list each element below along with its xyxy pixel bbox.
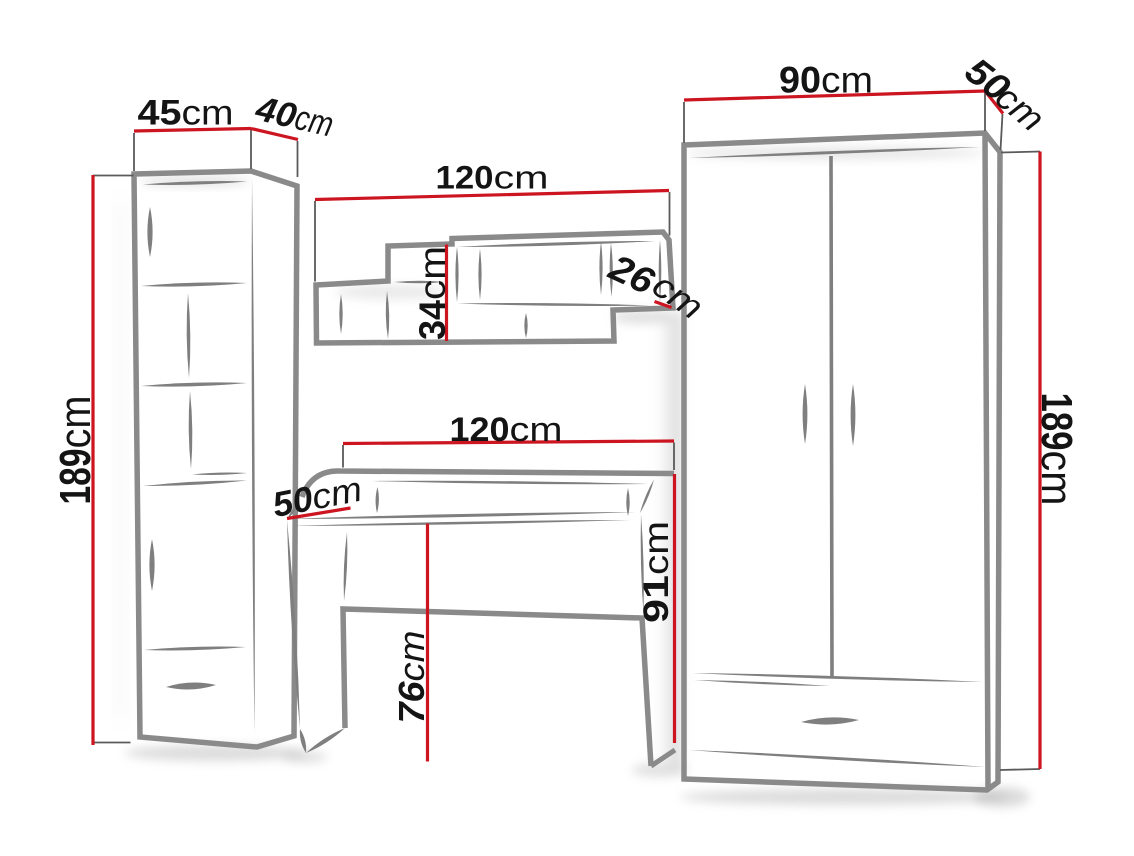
svg-text:76cm: 76cm — [391, 631, 432, 724]
svg-text:34cm: 34cm — [412, 246, 453, 340]
svg-text:90cm: 90cm — [779, 60, 873, 101]
svg-text:91cm: 91cm — [637, 521, 676, 623]
svg-text:120cm: 120cm — [450, 411, 563, 449]
svg-text:189cm: 189cm — [51, 396, 100, 505]
svg-text:120cm: 120cm — [436, 160, 549, 196]
svg-text:50cm: 50cm — [269, 470, 365, 525]
svg-text:189cm: 189cm — [1032, 393, 1081, 506]
svg-text:45cm: 45cm — [138, 93, 234, 132]
svg-text:40cm: 40cm — [251, 89, 337, 145]
